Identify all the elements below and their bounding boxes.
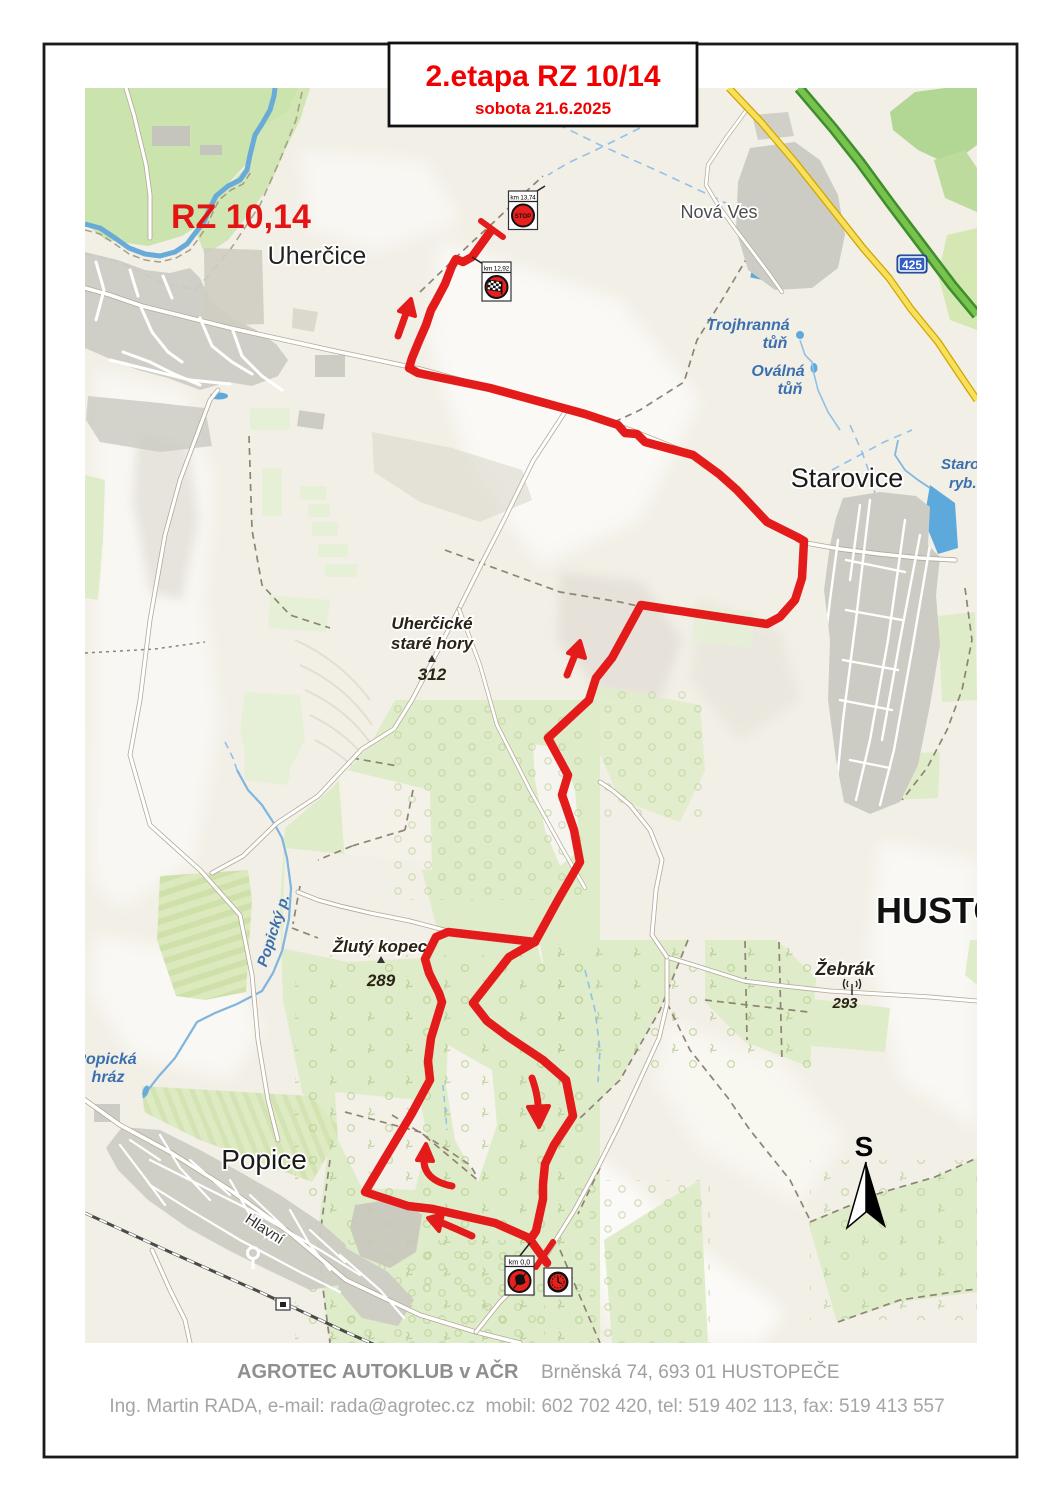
svg-text:312: 312 [418,665,447,684]
svg-text:Brněnská 74, 693 01 HUSTOPEČE: Brněnská 74, 693 01 HUSTOPEČE [541,1361,840,1383]
svg-text:RZ 10,14: RZ 10,14 [171,198,311,236]
svg-text:Žlutý kopec: Žlutý kopec [332,937,428,956]
svg-text:Popice: Popice [221,1144,307,1175]
svg-text:hráz: hráz [92,1069,125,1086]
svg-text:Trojhranná: Trojhranná [706,317,789,334]
svg-text:Starovice: Starovice [791,463,904,493]
svg-text:tůň: tůň [778,381,803,398]
svg-text:425: 425 [902,258,922,272]
svg-text:289: 289 [366,971,396,990]
svg-text:Ing. Martin RADA, e-mail: rada: Ing. Martin RADA, e-mail: rada@agrotec.c… [109,1396,944,1417]
svg-text:tůň: tůň [763,335,788,352]
svg-text:Nová Ves: Nová Ves [680,202,757,222]
svg-text:Uherčice: Uherčice [268,242,367,270]
svg-text:km 0,0: km 0,0 [509,1258,531,1267]
svg-text:STOP: STOP [515,214,531,220]
svg-text:Oválná: Oválná [751,363,804,380]
svg-text:ryb.: ryb. [949,475,977,492]
svg-text:sobota 21.6.2025: sobota 21.6.2025 [475,99,611,118]
svg-text:km 12,92: km 12,92 [484,265,510,272]
svg-text:AGROTEC AUTOKLUB v AČR: AGROTEC AUTOKLUB v AČR [237,1359,519,1383]
svg-text:S: S [855,1131,874,1162]
svg-text:293: 293 [831,995,858,1012]
svg-text:2.etapa RZ 10/14: 2.etapa RZ 10/14 [425,60,660,93]
svg-text:Žebrák: Žebrák [814,958,875,979]
svg-text:Uherčické: Uherčické [391,614,472,633]
svg-text:km 13,74: km 13,74 [510,194,536,201]
svg-text:staré hory: staré hory [391,634,475,653]
